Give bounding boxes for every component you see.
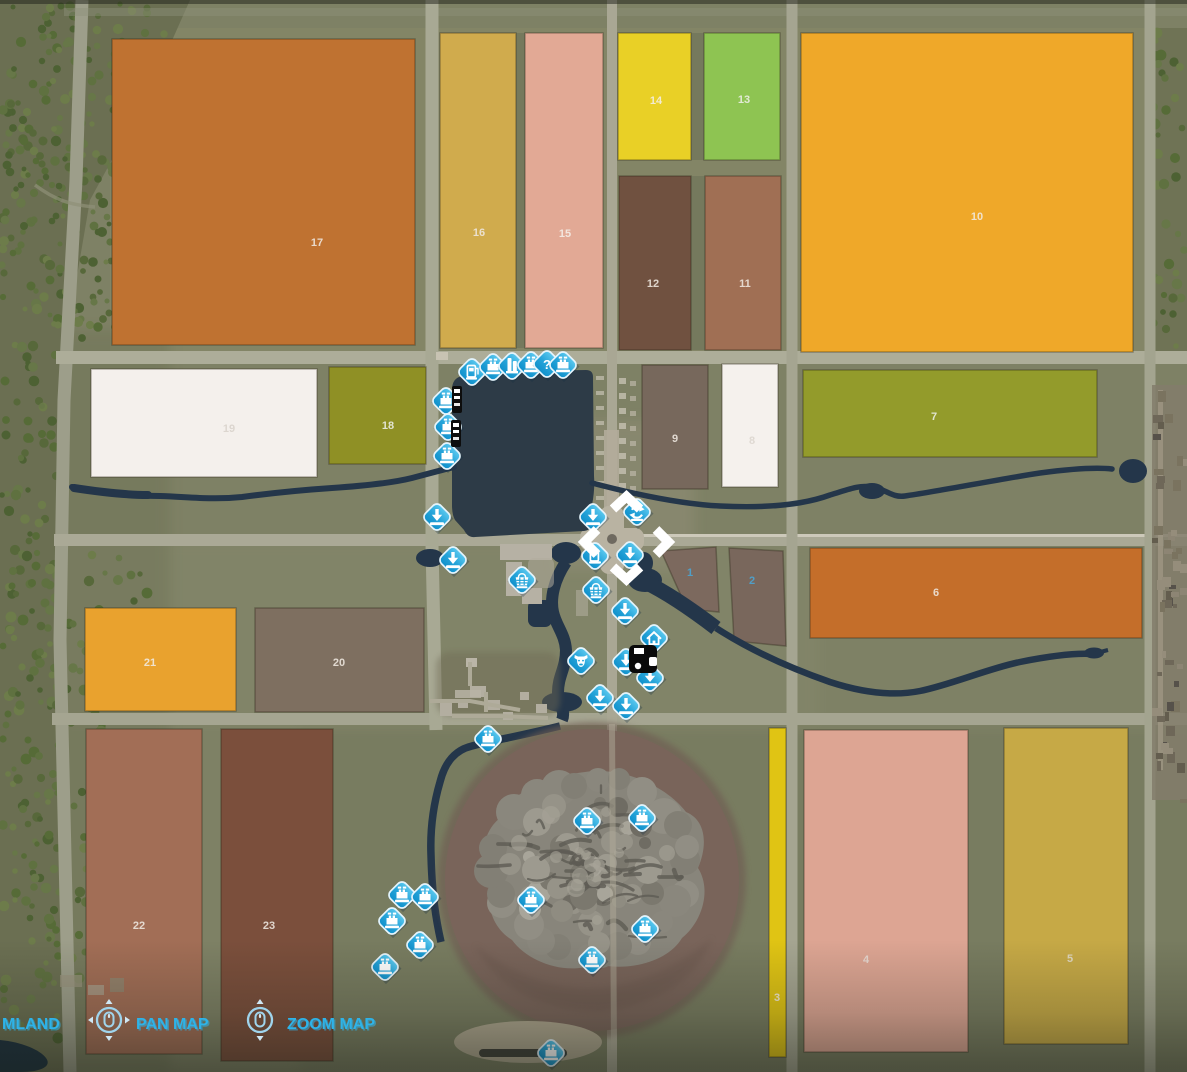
svg-text:10: 10: [971, 211, 983, 223]
svg-text:PAN MAP: PAN MAP: [136, 1016, 209, 1033]
svg-text:18: 18: [382, 420, 394, 432]
svg-text:ZOOM MAP: ZOOM MAP: [287, 1016, 375, 1033]
svg-text:22: 22: [133, 920, 145, 932]
svg-text:12: 12: [647, 278, 659, 290]
svg-text:20: 20: [333, 657, 345, 669]
svg-text:1: 1: [687, 567, 693, 579]
svg-text:17: 17: [311, 237, 323, 249]
svg-text:15: 15: [559, 228, 571, 240]
svg-text:11: 11: [739, 278, 751, 290]
svg-text:13: 13: [738, 94, 750, 106]
svg-text:14: 14: [650, 95, 663, 107]
svg-text:19: 19: [223, 423, 235, 435]
svg-text:9: 9: [672, 433, 678, 445]
svg-text:2: 2: [749, 575, 755, 587]
svg-text:21: 21: [144, 657, 156, 669]
svg-text:23: 23: [263, 920, 275, 932]
svg-text:8: 8: [749, 435, 755, 447]
svg-text:6: 6: [933, 587, 939, 599]
svg-text:16: 16: [473, 227, 485, 239]
svg-text:7: 7: [931, 411, 937, 423]
svg-text:MLAND: MLAND: [2, 1016, 60, 1033]
